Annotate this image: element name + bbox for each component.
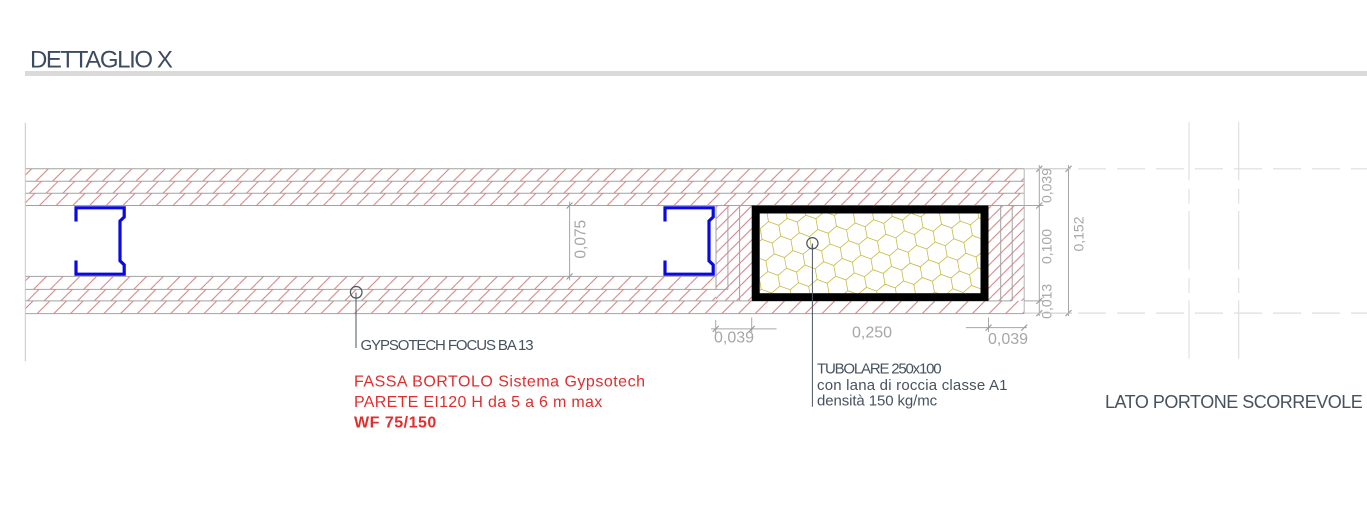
svg-text:0,075: 0,075 bbox=[573, 220, 590, 259]
svg-text:0,039: 0,039 bbox=[988, 331, 1028, 348]
svg-text:0,039: 0,039 bbox=[714, 330, 754, 347]
svg-text:GYPSOTECH FOCUS BA 13: GYPSOTECH FOCUS BA 13 bbox=[361, 337, 534, 354]
svg-text:DETTAGLIO X: DETTAGLIO X bbox=[30, 47, 173, 74]
svg-text:LATO PORTONE SCORREVOLE: LATO PORTONE SCORREVOLE bbox=[1105, 392, 1363, 412]
svg-text:con lana di roccia classe A1: con lana di roccia classe A1 bbox=[817, 377, 1008, 394]
svg-text:PARETE EI120 H da 5 a 6 m max: PARETE EI120 H da 5 a 6 m max bbox=[354, 394, 603, 411]
svg-text:0,250: 0,250 bbox=[852, 325, 892, 342]
svg-text:0,039: 0,039 bbox=[1039, 168, 1055, 203]
svg-text:TUBOLARE 250x100: TUBOLARE 250x100 bbox=[817, 360, 941, 377]
svg-text:densità 150 kg/mc: densità 150 kg/mc bbox=[817, 393, 938, 410]
svg-text:FASSA BORTOLO Sistema Gypsotec: FASSA BORTOLO Sistema Gypsotech bbox=[354, 374, 645, 391]
svg-text:0,152: 0,152 bbox=[1071, 216, 1087, 251]
svg-text:WF 75/150: WF 75/150 bbox=[354, 415, 437, 432]
svg-text:0,100: 0,100 bbox=[1039, 229, 1055, 264]
